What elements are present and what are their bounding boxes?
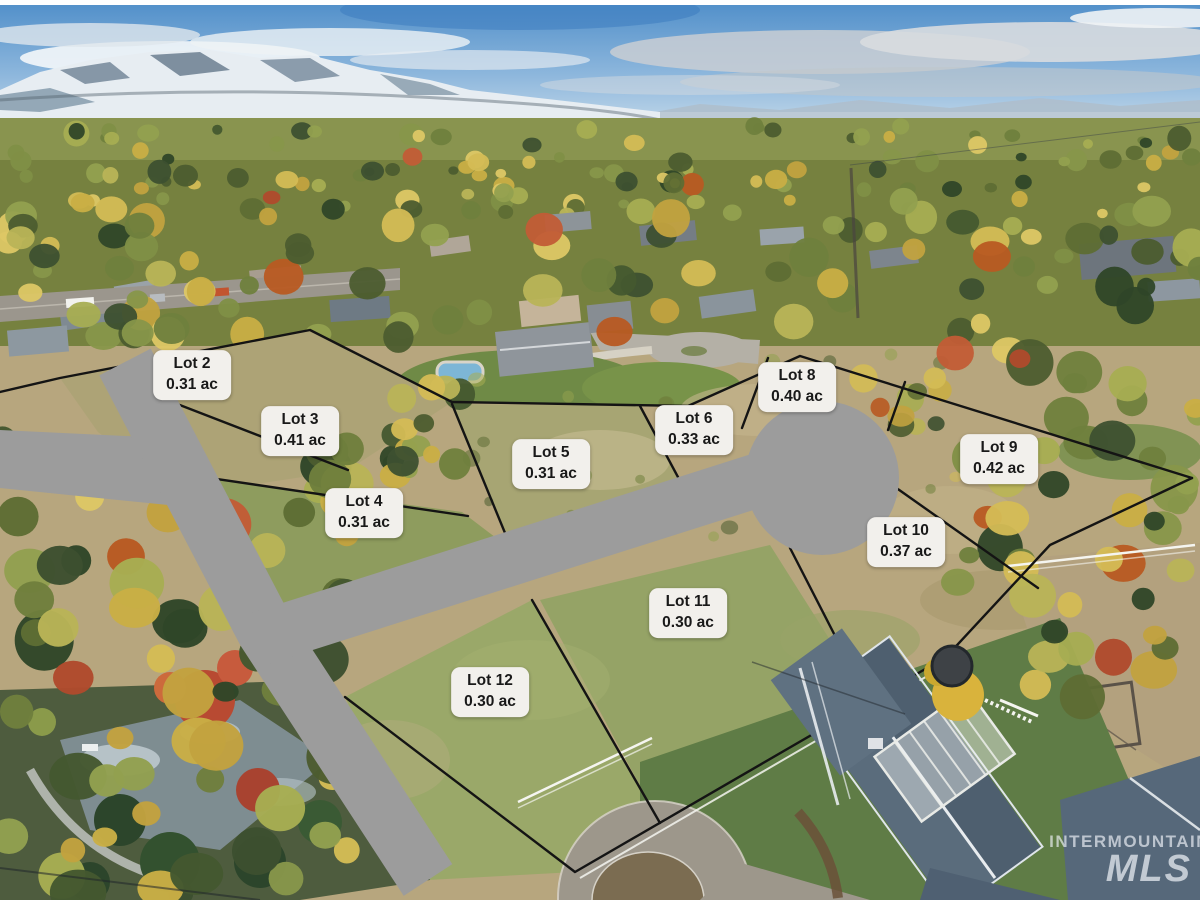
lot-label-11: Lot 110.30 ac xyxy=(649,588,727,638)
lot-label-10: Lot 100.37 ac xyxy=(867,517,945,567)
lot-area: 0.30 ac xyxy=(464,692,516,713)
lot-name: Lot 3 xyxy=(281,411,318,428)
lot-name: Lot 4 xyxy=(345,493,382,510)
lot-name: Lot 6 xyxy=(675,410,712,427)
lot-label-6: Lot 60.33 ac xyxy=(655,405,733,455)
lot-name: Lot 10 xyxy=(883,522,929,539)
aerial-lot-map: Lot 20.31 ac Lot 30.41 ac Lot 40.31 ac L… xyxy=(0,0,1200,900)
lot-label-8: Lot 80.40 ac xyxy=(758,362,836,412)
trampoline xyxy=(932,646,972,686)
lot-label-12: Lot 120.30 ac xyxy=(451,667,529,717)
lot-name: Lot 11 xyxy=(666,593,711,610)
lot-area: 0.31 ac xyxy=(525,464,577,485)
lot-name: Lot 12 xyxy=(467,672,513,689)
lot-label-2: Lot 20.31 ac xyxy=(153,350,231,400)
lot-label-9: Lot 90.42 ac xyxy=(960,434,1038,484)
lot-label-3: Lot 30.41 ac xyxy=(261,406,339,456)
lot-area: 0.42 ac xyxy=(973,459,1025,480)
lot-area: 0.40 ac xyxy=(771,387,823,408)
lot-area: 0.33 ac xyxy=(668,430,720,451)
lot-area: 0.31 ac xyxy=(338,513,390,534)
lot-label-4: Lot 40.31 ac xyxy=(325,488,403,538)
lot-area: 0.31 ac xyxy=(166,375,218,396)
lot-area: 0.30 ac xyxy=(662,613,714,634)
lot-area: 0.37 ac xyxy=(880,542,932,563)
lot-name: Lot 5 xyxy=(532,444,569,461)
lot-label-5: Lot 50.31 ac xyxy=(512,439,590,489)
lot-area: 0.41 ac xyxy=(274,431,326,452)
lot-name: Lot 2 xyxy=(173,355,210,372)
lot-name: Lot 8 xyxy=(778,367,815,384)
lot-name: Lot 9 xyxy=(980,439,1017,456)
